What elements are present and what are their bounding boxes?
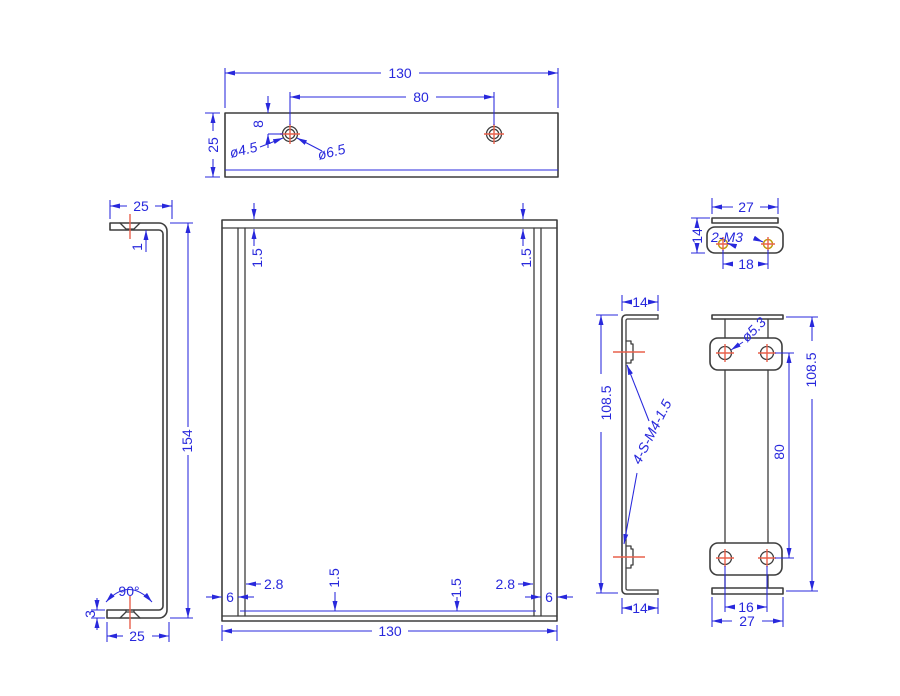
dim-front-lip-left-text: 6 [226,589,234,605]
dim-front-lip-right-text: 6 [545,589,553,605]
front-view-outline [222,220,557,621]
callout-clinch-nuts: 4-S-M4-1.5 [624,365,675,544]
dim-left-step: 1 [129,230,146,252]
dim-clip-width-text: 27 [738,199,754,215]
dim-front-thickness-bottom-left: 1.5 [326,568,342,611]
dim-strip-hole-spacing: 80 [771,353,794,558]
dim-left-thickness: 3 [82,598,105,630]
callout-hole-small: ø4.5 [228,138,283,161]
dim-channel-flange-bottom-text: 14 [632,600,648,616]
dim-channel-flange-top: 14 [622,294,658,311]
top-view-outline [225,113,558,177]
dim-strip-height-text: 108.5 [803,352,819,387]
strip-back-view: ø5.3 108.5 80 16 27 [710,314,819,629]
dim-front-thickness-bottom-right: 1.5 [448,578,464,611]
dim-strip-hole-spacing-text: 80 [771,444,787,460]
dim-front-inset-left: 2.8 [246,576,284,592]
clip-top-view: 27 14 2-M3 18 [689,198,783,272]
dim-left-thickness-text: 3 [82,610,98,618]
dim-front-inset-left-text: 2.8 [264,576,284,592]
dim-front-thickness-top-right: 1.5 [518,203,534,268]
callout-hole-small-text: ø4.5 [228,139,259,161]
front-view: 1.5 1.5 6 2.8 1.5 1.5 2.8 [206,203,573,641]
dim-front-inset-right-text: 2.8 [496,576,516,592]
dim-channel-flange-top-text: 14 [632,294,648,310]
dim-top-edge-offset-text: 8 [250,120,266,128]
dim-channel-height-text: 108.5 [598,385,614,420]
dim-strip-width-text: 27 [739,613,755,629]
dim-channel-height: 108.5 [596,315,618,593]
dim-channel-flange-bottom: 14 [622,598,658,616]
left-side-view: 25 1 154 90° 3 25 [82,198,195,644]
dim-front-thickness-bottom-left-text: 1.5 [326,568,342,588]
dim-front-thickness-top-right-text: 1.5 [518,248,534,268]
drawing-sheet: 130 80 25 8 ø4.5 ø6.5 [0,0,900,696]
dim-top-width-text: 130 [388,65,412,81]
dim-front-width: 130 [222,623,557,641]
dim-left-flange-width-bottom-text: 25 [129,628,145,644]
left-view-outline [107,223,167,618]
dim-front-inset-right: 2.8 [496,576,533,592]
top-view: 130 80 25 8 ø4.5 ø6.5 [205,65,558,177]
dim-left-flange-width-bottom: 25 [107,622,169,644]
dim-clip-hole-spacing-text: 18 [738,256,754,272]
dim-front-width-text: 130 [378,623,402,639]
channel-side-view: 14 108.5 4-S-M4-1.5 14 [596,294,675,616]
dim-left-height: 154 [170,223,195,618]
dim-top-hole-spacing: 80 [290,89,494,125]
dim-strip-hole-pitch: 16 [725,566,767,615]
center-mark [484,124,504,144]
dim-left-step-text: 1 [129,243,145,251]
dim-top-depth: 25 [205,113,221,177]
dim-left-flange-width-text: 25 [133,198,149,214]
dim-left-height-text: 154 [179,429,195,453]
callout-clinch-nuts-text: 4-S-M4-1.5 [629,397,675,467]
dim-top-hole-spacing-text: 80 [413,89,429,105]
callout-hole-large: ø6.5 [297,138,347,163]
dim-left-bend-angle: 90° [106,583,152,602]
dim-left-flange-width: 25 [110,198,172,219]
dim-front-thickness-bottom-right-text: 1.5 [448,578,464,598]
dim-front-thickness-top-left: 1.5 [249,203,265,268]
callout-clip-thread: 2-M3 [710,229,763,246]
dim-strip-height: 108.5 [786,317,819,591]
callout-hole-large-text: ø6.5 [316,141,347,163]
dim-front-thickness-top-left-text: 1.5 [249,248,265,268]
callout-clip-thread-text: 2-M3 [710,229,743,245]
counterbore-hole-right [484,124,504,144]
dim-front-lip-left: 6 [206,589,254,605]
dim-front-lip-right: 6 [525,589,573,605]
drawing-canvas: 130 80 25 8 ø4.5 ø6.5 [0,0,900,696]
dim-left-bend-angle-text: 90° [118,583,139,599]
dim-top-depth-text: 25 [205,137,221,153]
dim-top-width: 130 [225,65,558,108]
dim-clip-width: 27 [712,198,778,215]
dim-clip-height-text: 14 [689,228,705,244]
